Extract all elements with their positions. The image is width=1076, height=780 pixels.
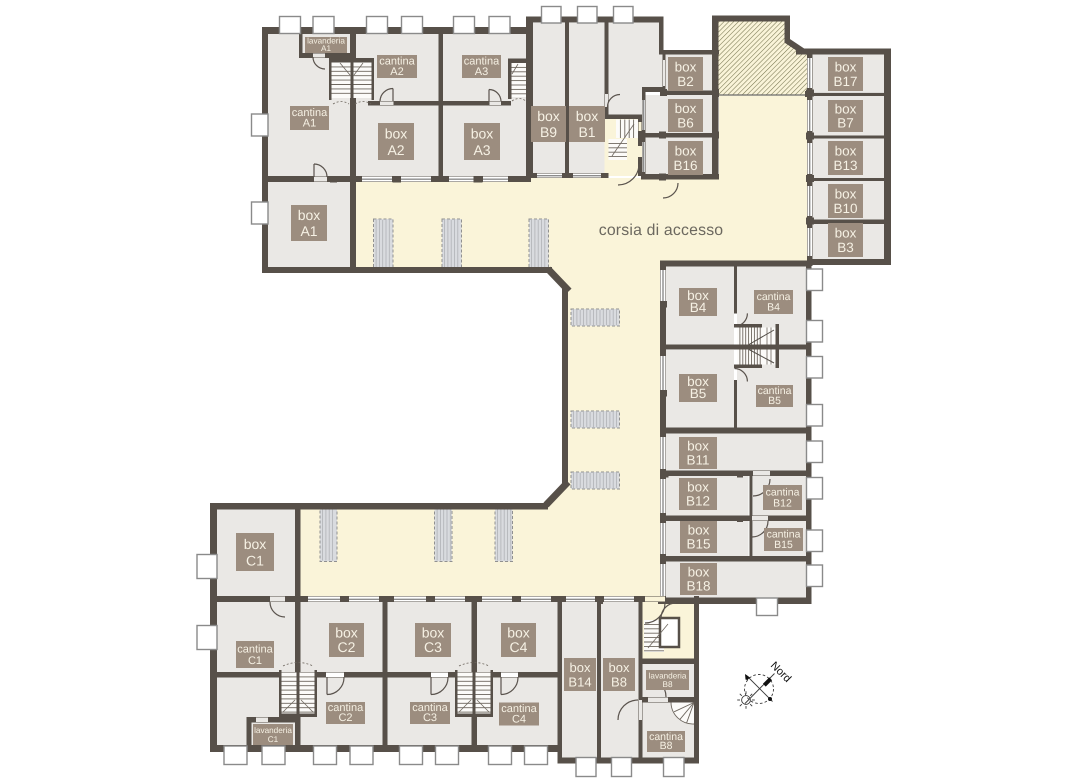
svg-text:B8: B8 (662, 680, 672, 689)
svg-text:box: box (335, 624, 358, 640)
svg-text:corsia di accesso: corsia di accesso (599, 222, 724, 239)
svg-text:B8: B8 (611, 674, 627, 689)
svg-text:box: box (675, 59, 697, 74)
svg-text:B6: B6 (677, 115, 694, 130)
svg-text:box: box (471, 126, 494, 142)
svg-text:B14: B14 (568, 674, 591, 689)
svg-text:B8: B8 (660, 740, 673, 752)
svg-text:B3: B3 (837, 240, 854, 255)
svg-text:box: box (688, 522, 710, 537)
svg-text:A3: A3 (475, 66, 488, 78)
svg-text:B15: B15 (686, 537, 710, 552)
svg-text:box: box (576, 108, 599, 124)
svg-text:A1: A1 (300, 223, 317, 239)
svg-text:B1: B1 (578, 124, 595, 140)
svg-text:C1: C1 (268, 735, 279, 744)
svg-text:box: box (675, 101, 697, 116)
svg-text:cantina: cantina (237, 643, 273, 655)
svg-text:box: box (507, 624, 530, 640)
svg-text:C1: C1 (248, 655, 262, 667)
svg-text:C2: C2 (338, 639, 356, 655)
svg-text:B12: B12 (773, 498, 792, 510)
svg-text:box: box (609, 660, 630, 675)
svg-text:box: box (835, 225, 857, 240)
svg-text:B4: B4 (690, 300, 707, 315)
svg-text:box: box (835, 101, 857, 116)
svg-text:B4: B4 (767, 302, 780, 314)
svg-text:box: box (537, 108, 560, 124)
svg-text:B10: B10 (833, 201, 857, 216)
svg-text:C2: C2 (338, 712, 352, 724)
svg-text:lavanderia: lavanderia (649, 671, 687, 680)
svg-text:C4: C4 (510, 639, 528, 655)
svg-text:B12: B12 (686, 494, 710, 509)
svg-text:B18: B18 (686, 579, 710, 594)
svg-text:B5: B5 (690, 386, 707, 401)
svg-text:box: box (244, 536, 267, 552)
svg-text:box: box (570, 660, 591, 675)
svg-text:B17: B17 (833, 74, 857, 89)
svg-text:C3: C3 (424, 639, 442, 655)
svg-text:B16: B16 (673, 158, 697, 173)
svg-text:C3: C3 (423, 712, 437, 724)
svg-text:box: box (688, 564, 710, 579)
svg-text:box: box (422, 624, 445, 640)
svg-text:box: box (835, 186, 857, 201)
svg-text:B7: B7 (837, 116, 854, 131)
svg-text:box: box (835, 143, 857, 158)
svg-text:box: box (675, 143, 697, 158)
svg-text:A3: A3 (473, 142, 490, 158)
svg-text:box: box (687, 438, 709, 453)
svg-text:box: box (835, 59, 857, 74)
svg-text:A2: A2 (387, 142, 404, 158)
svg-text:box: box (687, 479, 709, 494)
svg-text:B2: B2 (677, 74, 694, 89)
svg-text:box: box (385, 126, 408, 142)
svg-text:B9: B9 (540, 124, 557, 140)
svg-text:lavanderia: lavanderia (254, 726, 292, 735)
svg-text:A2: A2 (390, 66, 403, 78)
svg-text:B13: B13 (833, 158, 857, 173)
svg-text:A1: A1 (303, 118, 316, 130)
svg-text:B15: B15 (774, 539, 793, 551)
svg-text:box: box (298, 207, 321, 223)
svg-text:C1: C1 (246, 553, 264, 569)
svg-text:A1: A1 (321, 44, 331, 53)
svg-text:B11: B11 (686, 453, 709, 468)
svg-text:B5: B5 (768, 395, 781, 407)
svg-text:C4: C4 (512, 713, 526, 725)
